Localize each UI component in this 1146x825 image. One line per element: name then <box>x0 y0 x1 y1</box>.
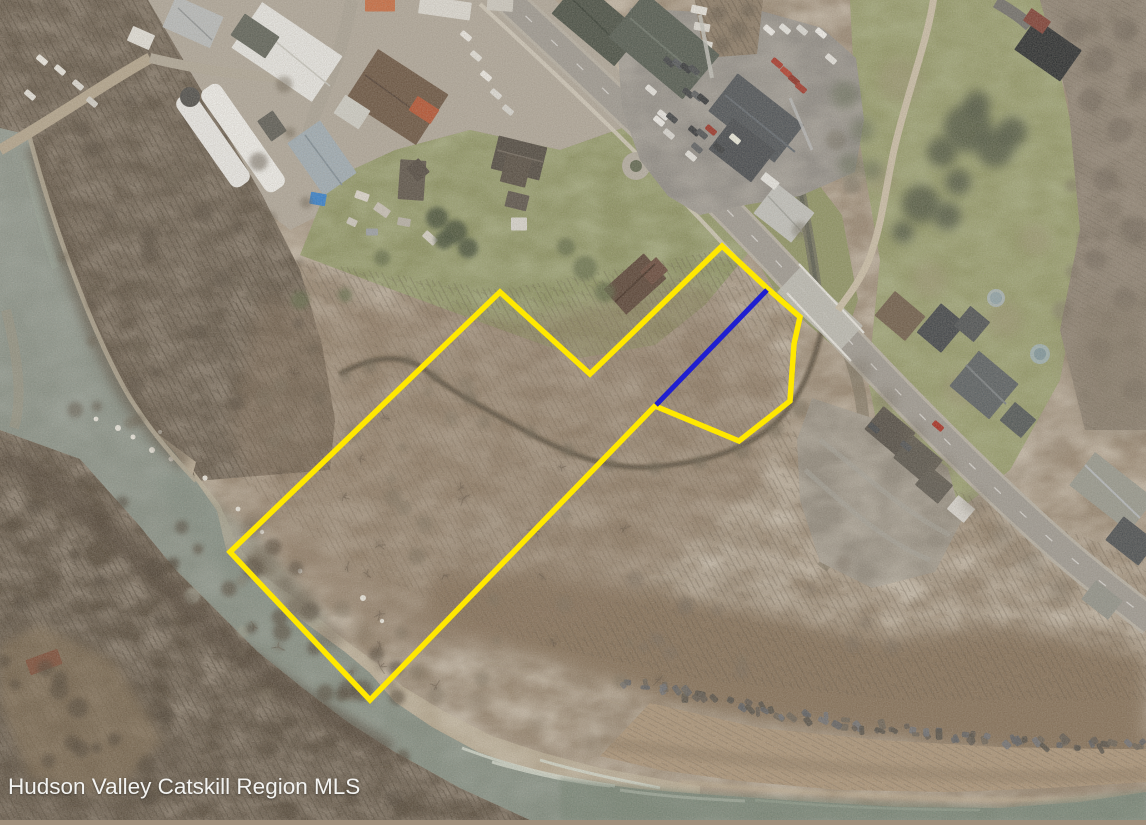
svg-text:Hudson Valley Catskill Region: Hudson Valley Catskill Region MLS <box>8 774 360 799</box>
